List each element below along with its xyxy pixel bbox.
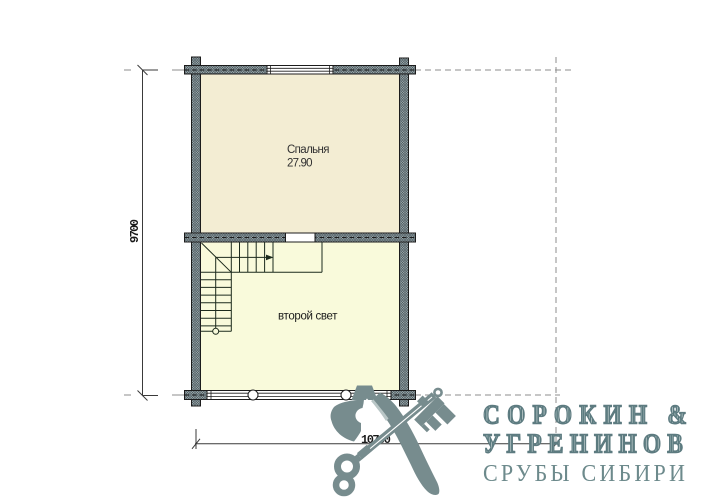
- svg-text:9700: 9700: [128, 219, 142, 243]
- svg-text:Спальня: Спальня: [287, 144, 330, 156]
- svg-text:второй свет: второй свет: [278, 311, 338, 323]
- svg-text:СРУБЫ СИБИРИ: СРУБЫ СИБИРИ: [483, 459, 688, 486]
- svg-text:СОРОКИН &: СОРОКИН &: [483, 399, 694, 430]
- svg-text:27.90: 27.90: [287, 158, 313, 170]
- svg-text:УГРЕНИНОВ: УГРЕНИНОВ: [483, 428, 689, 459]
